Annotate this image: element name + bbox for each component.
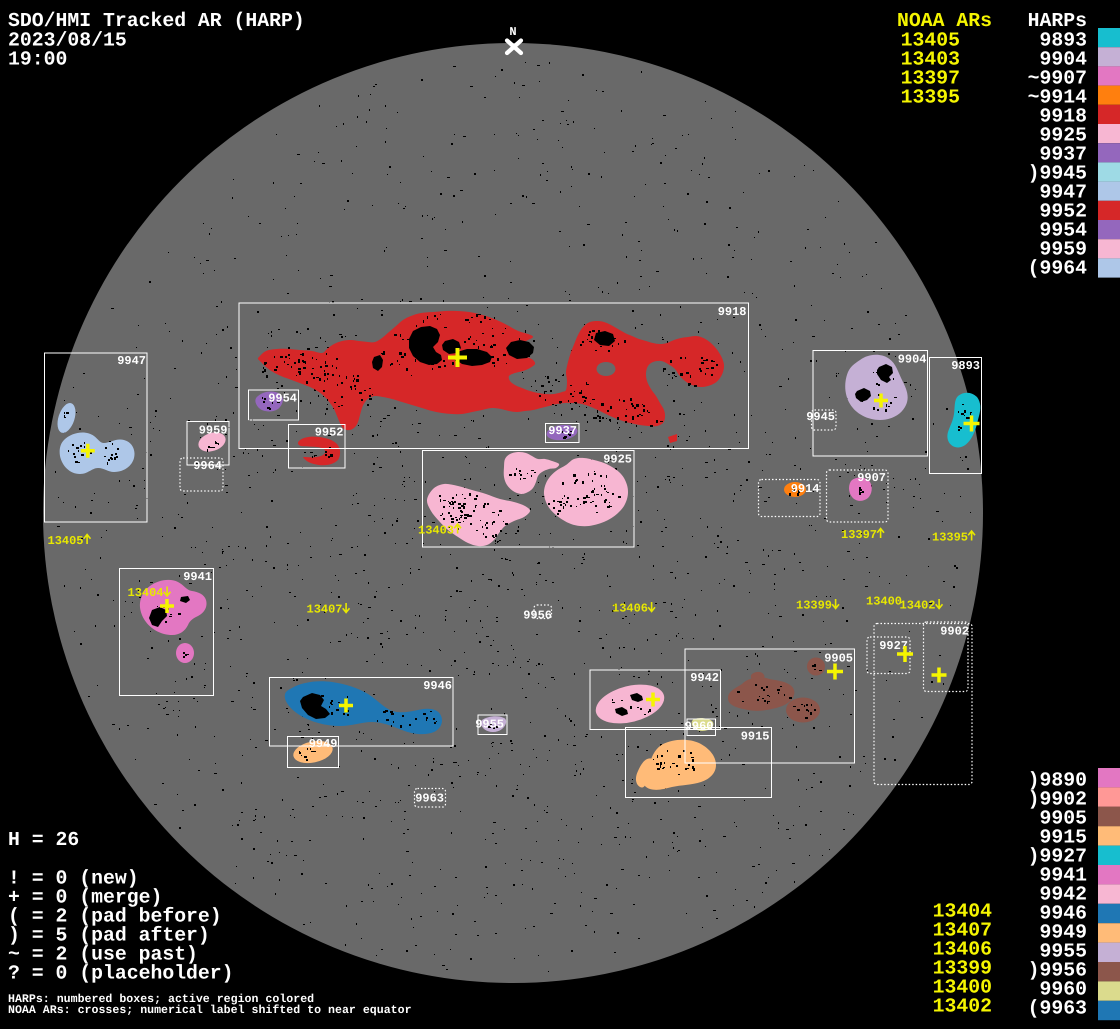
svg-text:9904: 9904 xyxy=(898,353,927,367)
svg-text:? = 0 (placeholder): ? = 0 (placeholder) xyxy=(8,963,234,985)
svg-text:9964: 9964 xyxy=(193,459,222,473)
svg-text:13407: 13407 xyxy=(307,603,343,617)
svg-text:9915: 9915 xyxy=(741,730,770,744)
svg-text:13395: 13395 xyxy=(932,531,968,545)
svg-text:9893: 9893 xyxy=(951,359,980,373)
svg-text:13406: 13406 xyxy=(612,602,648,616)
svg-text:9902: 9902 xyxy=(940,625,969,639)
svg-text:9949: 9949 xyxy=(309,737,338,751)
svg-text:9907: 9907 xyxy=(857,471,886,485)
svg-text:13405: 13405 xyxy=(48,534,84,548)
svg-text:13404: 13404 xyxy=(128,586,164,600)
svg-text:9952: 9952 xyxy=(315,426,344,440)
svg-text:13399: 13399 xyxy=(796,599,832,613)
svg-text:13397: 13397 xyxy=(841,528,877,542)
svg-text:13403: 13403 xyxy=(418,524,454,538)
svg-text:(9964: (9964 xyxy=(1028,258,1087,280)
svg-text:N: N xyxy=(509,25,516,39)
svg-text:13402: 13402 xyxy=(933,996,992,1018)
svg-text:13402: 13402 xyxy=(900,599,936,613)
svg-text:H = 26: H = 26 xyxy=(8,829,79,851)
svg-text:9918: 9918 xyxy=(718,305,747,319)
svg-text:9925: 9925 xyxy=(603,453,632,467)
svg-text:9960: 9960 xyxy=(685,720,714,734)
svg-text:9945: 9945 xyxy=(806,410,835,424)
svg-text:19:00: 19:00 xyxy=(8,49,67,71)
svg-text:13395: 13395 xyxy=(901,87,960,109)
svg-text:9954: 9954 xyxy=(268,392,297,406)
svg-text:9914: 9914 xyxy=(791,482,820,496)
svg-text:9955: 9955 xyxy=(475,718,504,732)
svg-text:9946: 9946 xyxy=(423,679,452,693)
svg-text:9937: 9937 xyxy=(548,424,577,438)
svg-text:(9963: (9963 xyxy=(1028,998,1087,1020)
svg-text:9959: 9959 xyxy=(199,424,228,438)
svg-text:9963: 9963 xyxy=(415,792,444,806)
svg-text:9956: 9956 xyxy=(523,609,552,623)
svg-text:9947: 9947 xyxy=(117,354,146,368)
svg-text:NOAA ARs: crosses; numerical l: NOAA ARs: crosses; numerical label shift… xyxy=(8,1004,412,1017)
svg-text:9905: 9905 xyxy=(824,652,853,666)
svg-text:9942: 9942 xyxy=(690,671,719,685)
svg-text:9941: 9941 xyxy=(183,570,212,584)
svg-text:13400: 13400 xyxy=(866,595,902,609)
